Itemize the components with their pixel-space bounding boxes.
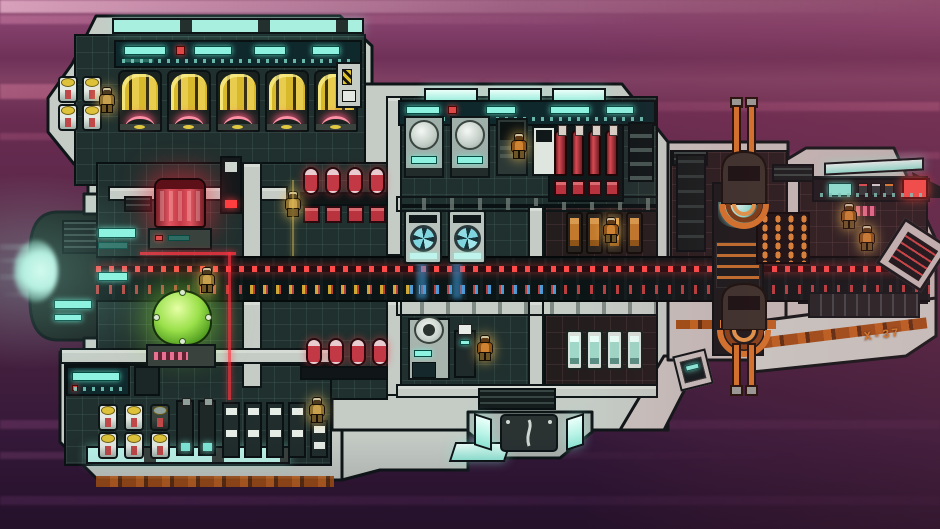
locker-handle (225, 162, 237, 172)
capacitor-block[interactable] (325, 206, 342, 223)
pod-door[interactable] (500, 414, 558, 452)
locker[interactable] (222, 402, 240, 458)
alert-light (72, 385, 78, 391)
crew-head (203, 268, 211, 275)
console-screen (124, 58, 154, 63)
red-alert-screen (902, 178, 928, 199)
crew-head (515, 134, 523, 141)
washer-screen (410, 253, 437, 259)
washer-slot (409, 215, 437, 223)
crew-leg (318, 415, 322, 422)
red-block[interactable] (571, 180, 585, 196)
console-screen (194, 46, 232, 55)
tall-locker[interactable] (220, 156, 242, 214)
locker[interactable] (244, 402, 262, 458)
locker-screen (248, 430, 259, 437)
bot-screen (460, 340, 470, 345)
fuel-canister[interactable] (98, 404, 118, 431)
teal-seat[interactable] (566, 330, 583, 370)
seat-cushion (570, 336, 579, 364)
capacitor-block[interactable] (369, 206, 386, 223)
capacitor-cell[interactable] (369, 167, 385, 195)
pod-window (474, 413, 492, 451)
crew-member[interactable] (286, 192, 300, 216)
engine-dome (269, 74, 305, 110)
engine-dome (220, 74, 256, 110)
biodome-base (146, 344, 216, 368)
round-boiler[interactable] (408, 318, 450, 380)
capacitor-cell[interactable] (325, 167, 341, 195)
crew-head (845, 204, 853, 211)
cockpit-console-strip[interactable] (812, 178, 930, 202)
status-screen (168, 235, 190, 241)
engine-dome (122, 74, 158, 110)
drive-pod-screen[interactable] (54, 314, 82, 321)
engine-dome (171, 74, 207, 110)
thruster-engine[interactable] (216, 70, 260, 132)
nav-screen (828, 183, 852, 196)
locker-screen (226, 408, 237, 415)
console-screen (312, 46, 340, 55)
console-screen (550, 106, 590, 114)
washer-fan (454, 225, 481, 252)
locker-screen (314, 442, 325, 449)
crew-leg (202, 285, 206, 292)
hull-vent (124, 196, 152, 212)
machine-drum (455, 120, 485, 150)
small-cabinet[interactable] (134, 366, 160, 396)
reactor-base (148, 228, 212, 250)
engine-base (169, 124, 209, 130)
machine-screen (457, 156, 483, 164)
crew-leg (480, 353, 484, 360)
crew-head (103, 88, 111, 95)
thruster-engine[interactable] (118, 70, 162, 132)
red-light-rail (96, 266, 930, 272)
crew-member[interactable] (842, 204, 856, 228)
crew-leg (312, 415, 316, 422)
crew-member[interactable] (478, 336, 492, 360)
machine-screen (411, 156, 437, 164)
red-cylinder[interactable] (588, 130, 601, 176)
fuel-canister[interactable] (82, 76, 102, 103)
crew-head (863, 226, 871, 233)
thruster-engine[interactable] (265, 70, 309, 132)
fuel-canister[interactable] (124, 432, 144, 459)
alert-light (176, 46, 185, 55)
base-lights (154, 352, 188, 360)
red-cylinder[interactable] (605, 130, 618, 176)
indicator-cluster (856, 206, 876, 216)
fuel-canister[interactable] (124, 404, 144, 431)
orange-seat[interactable] (626, 212, 643, 254)
engine-base (218, 124, 258, 130)
capacitor-cell[interactable] (350, 338, 366, 366)
striped-hatch[interactable] (336, 62, 362, 108)
capacitor-block[interactable] (347, 206, 364, 223)
orange-dash-light (720, 320, 756, 328)
fuel-canister[interactable] (98, 432, 118, 459)
rivet-icon (506, 420, 510, 424)
bot-head (458, 324, 472, 335)
boiler-console (412, 362, 436, 378)
engine-base (316, 124, 356, 130)
status-light (155, 235, 163, 241)
engine-console-strip[interactable] (114, 40, 362, 68)
crew-member[interactable] (512, 134, 526, 158)
fan-washer[interactable] (448, 210, 486, 264)
drive-pod-screen[interactable] (54, 300, 92, 309)
red-block[interactable] (605, 180, 619, 196)
locker-screen (292, 408, 303, 415)
crew-leg (288, 209, 292, 216)
wall (242, 300, 262, 388)
capacitor-cell[interactable] (303, 167, 319, 195)
red-cylinder[interactable] (554, 130, 567, 176)
seat-cushion (630, 336, 639, 364)
rivet-icon (548, 420, 552, 424)
locker-screen (292, 430, 303, 437)
glow-tank[interactable] (198, 400, 216, 456)
crew-leg (612, 235, 616, 242)
wall (242, 162, 262, 258)
boiler-hatch (423, 324, 435, 336)
belly-vent (478, 388, 556, 410)
crew-leg (102, 105, 106, 112)
crew-member[interactable] (310, 398, 324, 422)
crew-leg (850, 221, 854, 228)
red-reactor[interactable] (154, 178, 206, 228)
locker[interactable] (288, 402, 306, 458)
fuel-canister-empty[interactable] (150, 404, 170, 431)
machine-base (452, 168, 488, 176)
mount-glow (718, 202, 758, 228)
service-bot[interactable] (454, 330, 476, 378)
storage-shelf[interactable] (628, 122, 654, 182)
kiosk-screen (680, 357, 707, 384)
deck-ticks-blue (410, 285, 560, 294)
monitor (858, 183, 868, 196)
seat-cushion (590, 336, 599, 364)
crew-leg (486, 353, 490, 360)
crew-head (289, 192, 297, 199)
engine-base (120, 124, 160, 130)
nav-console-screen (888, 231, 938, 281)
round-top-machine[interactable] (404, 116, 444, 178)
red-block[interactable] (588, 180, 602, 196)
hazard-stripe-icon (342, 69, 352, 85)
reactor-cap (156, 180, 204, 189)
capacitor-cell[interactable] (328, 338, 344, 366)
locker[interactable] (310, 420, 328, 458)
seat-cushion (590, 218, 599, 246)
washer-screen (454, 253, 481, 259)
pod-window (566, 413, 584, 451)
crew-leg (868, 243, 872, 250)
machine-base (406, 168, 442, 176)
console-screen (254, 46, 286, 55)
crew-member[interactable] (200, 268, 214, 292)
console-screen (406, 106, 440, 114)
capacitor-shelf (300, 366, 388, 380)
crew-member-seated[interactable] (604, 218, 618, 242)
fan-washer[interactable] (404, 210, 442, 264)
crew-leg (294, 209, 298, 216)
locker-screen (226, 430, 237, 437)
orange-seat[interactable] (586, 212, 603, 254)
hatch-panel (342, 90, 356, 102)
reactor-slats (160, 191, 200, 221)
crew-head (481, 336, 489, 343)
capacitor-cell[interactable] (347, 167, 363, 195)
ammo-console[interactable] (716, 242, 760, 288)
red-cylinder[interactable] (571, 130, 584, 176)
crew-leg (844, 221, 848, 228)
thruster-engine[interactable] (167, 70, 211, 132)
crew-leg (108, 105, 112, 112)
orange-seat[interactable] (566, 212, 583, 254)
ammo-rack[interactable] (756, 212, 810, 264)
capacitor-block[interactable] (303, 206, 320, 223)
crew-member[interactable] (860, 226, 874, 250)
round-top-machine[interactable] (450, 116, 490, 178)
red-block[interactable] (554, 180, 568, 196)
green-biodome[interactable] (152, 290, 212, 346)
blue-light-bar (452, 263, 462, 299)
teal-seat[interactable] (586, 330, 603, 370)
drive-exhaust-glow (14, 240, 58, 302)
fuel-canister[interactable] (58, 104, 78, 131)
crew-leg (606, 235, 610, 242)
console-screen (124, 46, 166, 55)
alert-light (448, 106, 457, 114)
monitor (884, 183, 894, 196)
crew-leg (520, 151, 524, 158)
hull-rust-stripe (96, 476, 334, 487)
wall-screen[interactable] (98, 272, 128, 281)
dome-knob (179, 289, 186, 296)
hull-bottom-step (342, 430, 468, 480)
crew-head (313, 398, 321, 405)
console-screen (72, 372, 120, 381)
locker-screen (270, 430, 281, 437)
dome-knob (153, 314, 160, 321)
washer-slot (453, 215, 481, 223)
deck-ticks-yellow (250, 285, 420, 294)
kiosk-readout (685, 362, 700, 371)
seat-cushion (610, 336, 619, 364)
cargo-console[interactable] (66, 366, 130, 396)
locker[interactable] (266, 402, 284, 458)
monitor (871, 183, 881, 196)
seat-cushion (630, 218, 639, 246)
locker-glow-slot (225, 200, 237, 208)
crew-member[interactable] (100, 88, 114, 112)
console-screen (606, 106, 634, 114)
engine-base (267, 124, 307, 130)
dome-knob (205, 314, 212, 321)
roof-vent (772, 164, 814, 182)
glow-tank[interactable] (176, 400, 194, 456)
crew-head (607, 218, 615, 225)
seat-cushion (570, 218, 579, 246)
crew-leg (862, 243, 866, 250)
hull-slat-panel (808, 292, 920, 318)
crew-leg (208, 285, 212, 292)
wall-screen[interactable] (98, 228, 136, 238)
turret-mount-shaft (712, 182, 764, 356)
locker-screen (270, 408, 281, 415)
boiler-screen (414, 350, 432, 357)
fuel-canister[interactable] (82, 104, 102, 131)
machine-drum (409, 120, 439, 150)
fuel-canister[interactable] (58, 76, 78, 103)
blue-light-bar (417, 263, 427, 299)
capacitor-cell[interactable] (306, 338, 322, 366)
washer-fan (410, 225, 437, 252)
shelf-stack[interactable] (676, 154, 706, 252)
console-screen (486, 106, 516, 114)
capacitor-cell[interactable] (372, 338, 388, 366)
teal-seat[interactable] (606, 330, 623, 370)
crew-leg (514, 151, 518, 158)
engine-roof-glass (112, 18, 364, 34)
wall-screen[interactable] (98, 242, 128, 249)
unit-hood (536, 130, 552, 142)
starship-scene: X-37 (0, 0, 940, 529)
fuel-canister[interactable] (150, 432, 170, 459)
teal-seat[interactable] (626, 330, 643, 370)
small-unit[interactable] (532, 126, 556, 176)
locker-screen (248, 408, 259, 415)
locker-screen (314, 426, 325, 433)
